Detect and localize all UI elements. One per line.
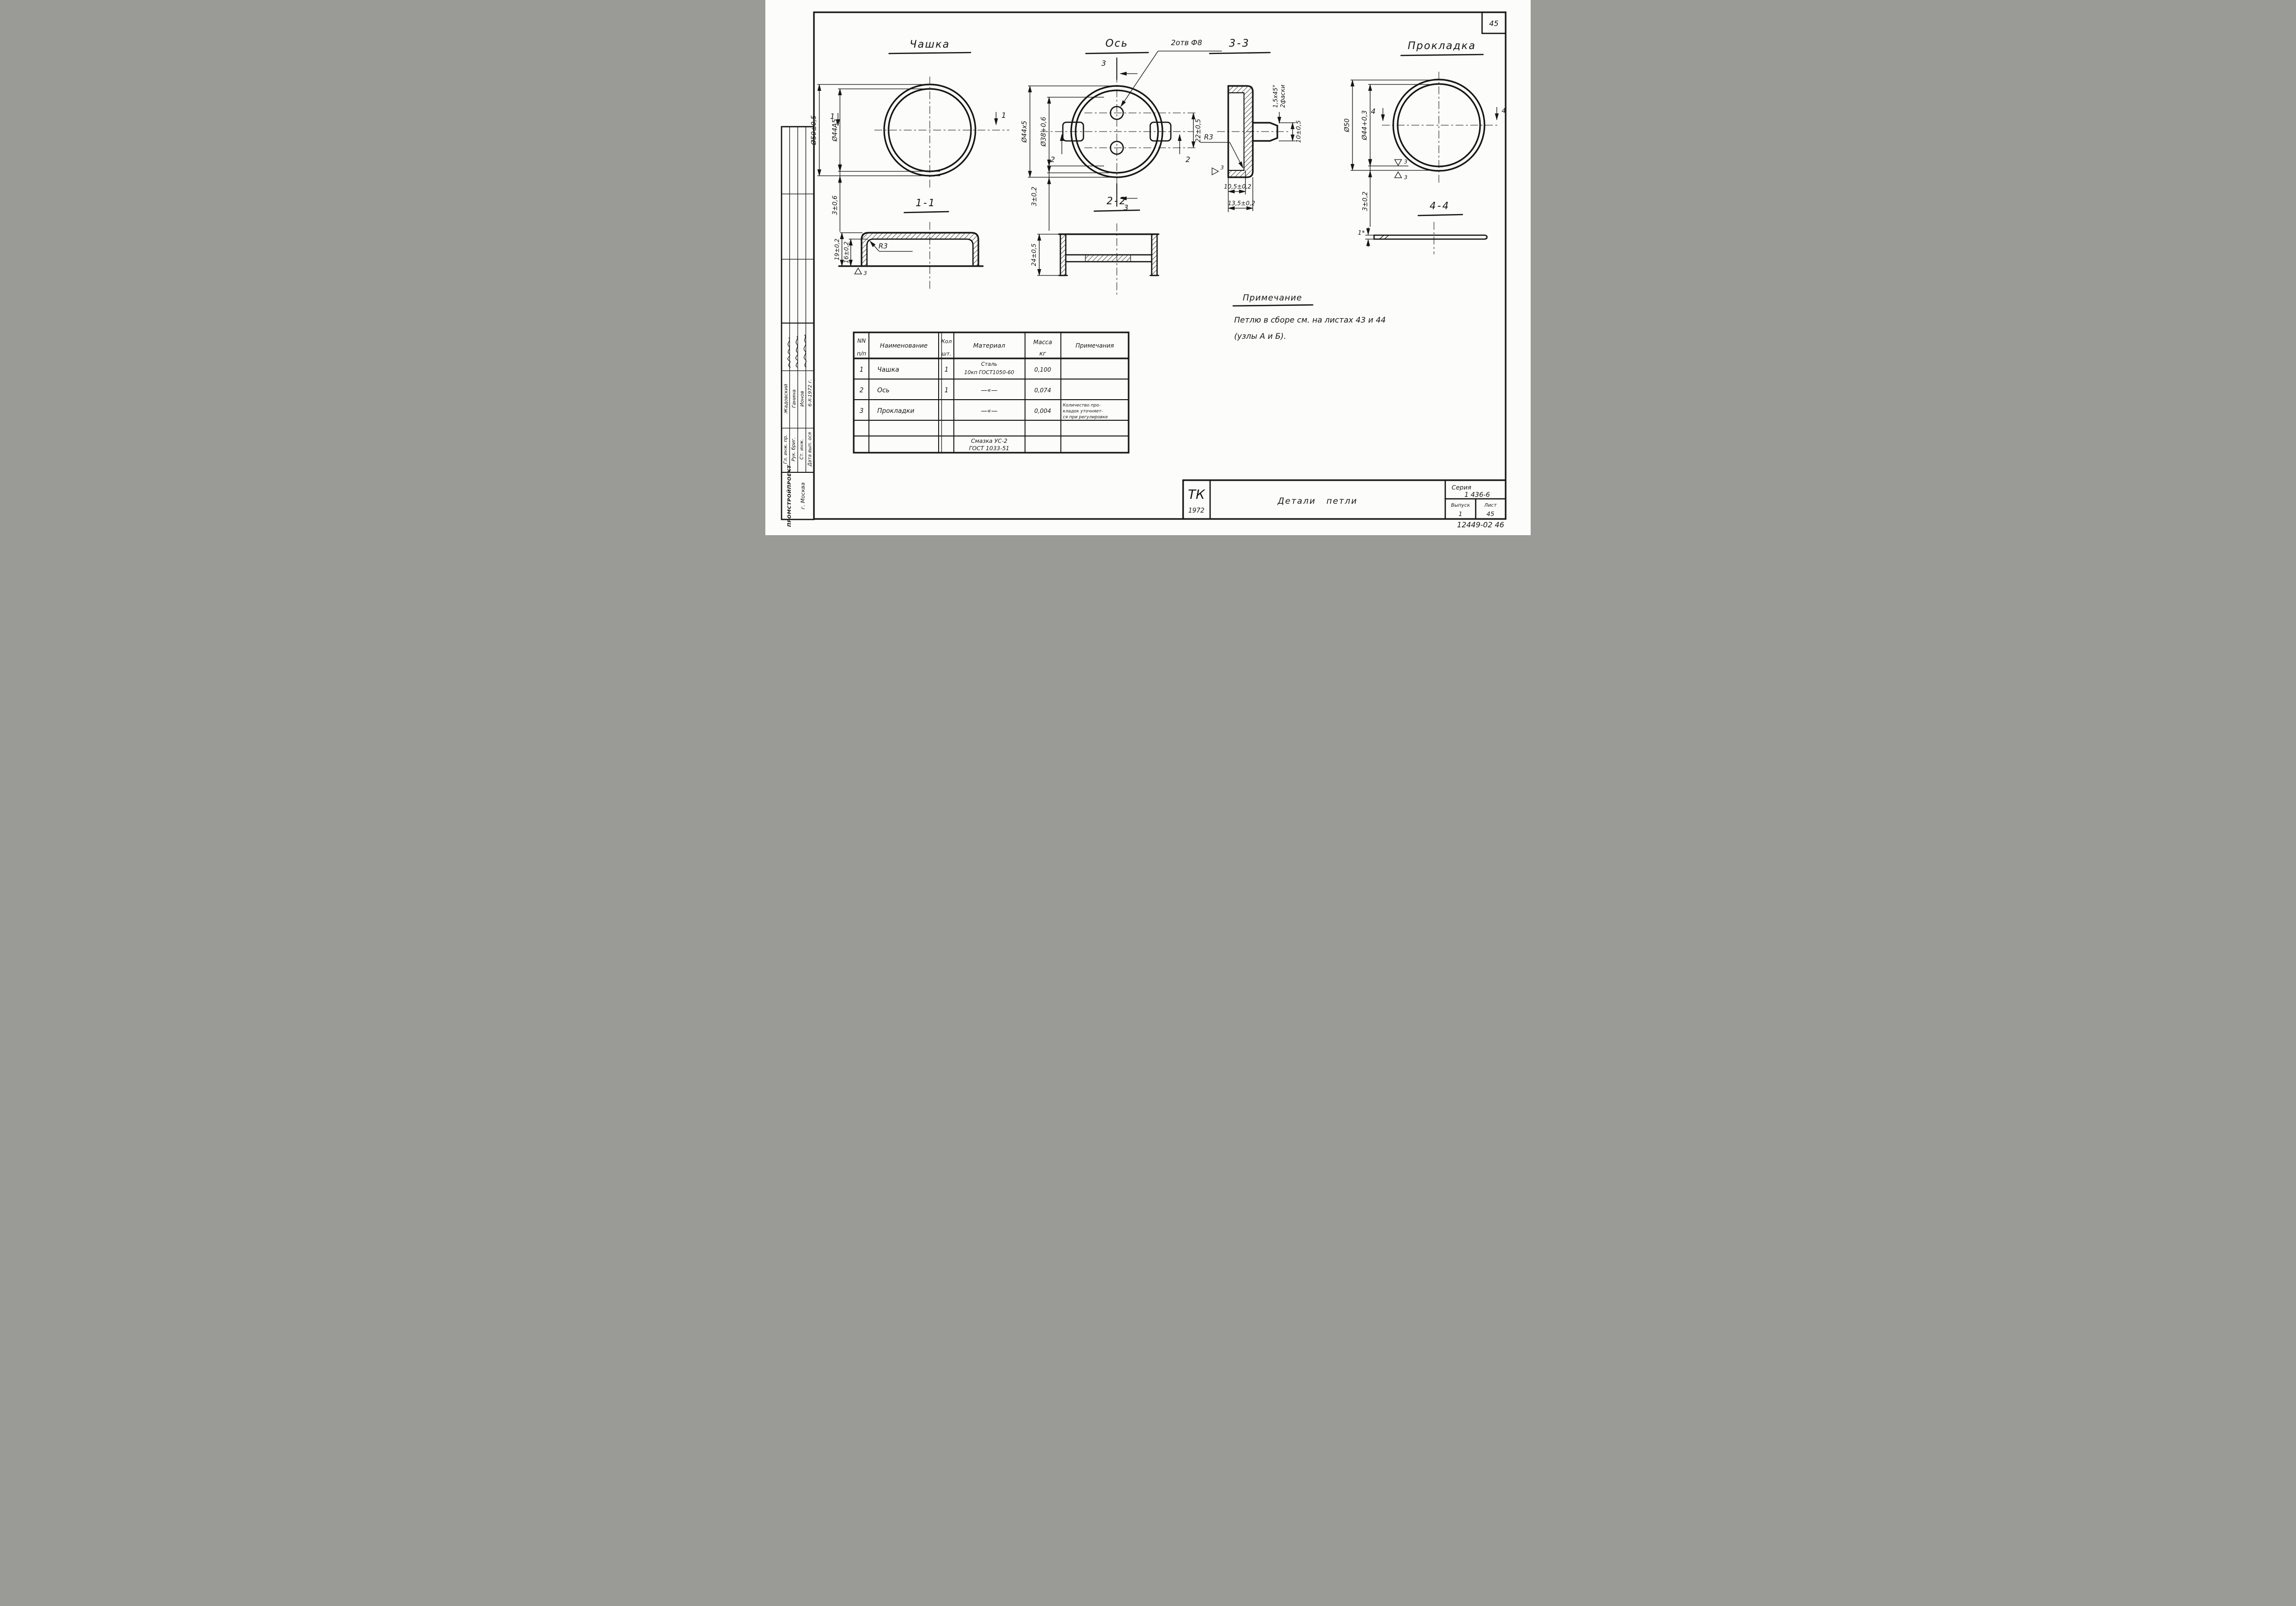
org-year: 1972 [1188, 507, 1204, 515]
sidebar-role-sr-eng: Ст. инж. [799, 439, 805, 460]
cell-num: 1 [860, 366, 864, 374]
sidebar-stamp: Гл. инж. пр. Жадовский Рук. бриг. Ганина… [782, 127, 814, 527]
cut-mark-4-right: 4 [1502, 108, 1506, 115]
sidebar-role-date: Дата вып. ося [808, 432, 813, 467]
th-nn2: п/п [857, 350, 866, 357]
surface-finish-value: 3 [1404, 174, 1407, 181]
dim-chashka-outer: Ø50±0,5 [810, 115, 818, 146]
surface-finish-icon [1212, 168, 1218, 175]
cell-qty: 1 [945, 387, 948, 394]
series-label: Серия [1452, 484, 1471, 491]
table-row: 1 Чашка 1 Сталь 10кп ГОСТ1050-60 0,100 [860, 361, 1052, 376]
dim-os-holes: 22±0,5 [1195, 119, 1202, 142]
cell-mat: —«— [981, 387, 998, 394]
th-qty2: шт. [942, 351, 951, 357]
dim-recess-depth: 10,5±0,2 [1224, 183, 1251, 190]
cell-mat: —«— [981, 408, 998, 415]
surface-finish-value: 3 [864, 270, 867, 276]
callout-holes: 2отв Ф8 [1171, 38, 1202, 47]
drawing-sheet: 45 12449-02 46 Гл. инж. пр. Жадовский Ру… [765, 0, 1531, 535]
org-code: ТК [1188, 488, 1206, 502]
surface-finish-icon [855, 268, 862, 274]
doc-number: 12449-02 46 [1457, 520, 1504, 529]
sidebar-name-sr-eng: Ионов [800, 391, 805, 407]
th-qty: Кол [941, 338, 952, 345]
dim-radius-r3: R3 [879, 243, 888, 250]
cell-mass: 0,074 [1034, 387, 1051, 394]
note-line-2: (узлы А и Б). [1234, 331, 1286, 341]
cell-mass: 0,004 [1034, 408, 1051, 414]
cut-mark-3-top: 3 [1101, 59, 1106, 68]
surface-finish-value: 3 [1220, 164, 1224, 171]
corner-number: 45 [1489, 19, 1498, 28]
issue-value: 1 [1459, 510, 1462, 517]
cell-name: Чашка [877, 366, 899, 374]
dim-chashka-inner: Ø44А5 [831, 119, 839, 142]
view-title-chashka: Чашка [910, 38, 950, 50]
th-mass2: кг [1039, 350, 1046, 357]
sidebar-role-brigade: Рук. бриг. [791, 437, 797, 461]
note-block: Примечание Петлю в сборе см. на листах 4… [1233, 293, 1386, 341]
series-value: 1 436-6 [1464, 491, 1490, 499]
table-row: 3 Прокладки —«— 0,004 Количество про- кл… [860, 403, 1108, 420]
dim-axis-height: 24±0,5 [1030, 244, 1037, 266]
cut-mark-1-right: 1 [1001, 111, 1006, 120]
th-name: Наименование [880, 342, 927, 349]
dim-radius-r3: R3 [1204, 134, 1214, 141]
sheet-value: 45 [1486, 510, 1494, 517]
dim-chashka-flange: 3±0,6 [832, 195, 839, 215]
sidebar-city: г. Москва [800, 482, 806, 509]
sidebar-name-brigade: Ганина [792, 389, 797, 408]
dim-os-outer: Ø44х5 [1021, 121, 1028, 143]
view-title-1-1: 1-1 [916, 197, 936, 209]
dim-chamfer: 1,5х45° [1272, 84, 1279, 108]
view-chashka: Чашка 1 1 Ø50±0,5 Ø44А5 3±0,6 [810, 38, 1009, 232]
dim-pin-height: 10±0,5 [1295, 120, 1302, 143]
cell-num: 3 [860, 408, 864, 415]
cell-note: кладок уточняет- [1063, 409, 1103, 414]
note-line-1: Петлю в сборе см. на листах 43 и 44 [1234, 315, 1386, 325]
dim-gasket-thickness: 1* [1358, 229, 1365, 236]
surface-finish-icon [1395, 160, 1402, 165]
dim-disc-width: 13,5±0,2 [1228, 200, 1255, 207]
sidebar-role-ch-eng: Гл. инж. пр. [783, 435, 788, 464]
view-section-4-4: 4-4 1* [1358, 200, 1487, 254]
issue-label: Выпуск [1451, 503, 1470, 508]
dim-prokladka-outer: Ø50 [1343, 118, 1351, 133]
drawing-title: Детали петли [1277, 496, 1358, 506]
cut-mark-2-left: 2 [1050, 155, 1055, 164]
gasket-strip-section [1374, 235, 1487, 239]
sidebar-date-value: 6-X-1972 г. [808, 379, 813, 407]
view-title-4-4: 4-4 [1430, 200, 1450, 212]
cell-name: Прокладки [877, 408, 914, 415]
sidebar-org: ПРОМСТРОЙПРОЕКТ [786, 464, 792, 527]
table-row: Смазка УС-2 ГОСТ 1033-51 [969, 437, 1009, 452]
sheet-label: Лист [1484, 503, 1497, 508]
dim-prokladka-inner: Ø44+0,3 [1361, 110, 1369, 141]
th-nn: NN [857, 337, 866, 344]
title-block: ТК 1972 Детали петли Серия 1 436-6 Выпус… [1183, 480, 1506, 519]
cell-qty: 1 [945, 366, 948, 374]
dim-cup-inner-h: 16±0,2 [843, 242, 850, 263]
parts-table: NN п/п Наименование Кол шт. Материал Мас… [854, 332, 1129, 453]
note-title: Примечание [1243, 293, 1302, 303]
cell-note: ся при регулировке [1063, 415, 1108, 420]
dim-os-flange: 3±0,2 [1031, 187, 1038, 206]
cut-mark-2-right: 2 [1186, 155, 1190, 164]
th-mass: Масса [1033, 339, 1052, 346]
view-section-1-1: 1-1 R3 19±0,2 16±0,2 3 [834, 197, 983, 289]
view-prokladka: Прокладка 4 4 Ø50 Ø44+0,3 3±0,2 3 3 [1343, 40, 1506, 227]
dim-cup-outer-h: 19±0,2 [834, 239, 840, 260]
dim-chamfer-count: 2фаски [1279, 84, 1286, 108]
dim-prokladka-flange: 3±0,2 [1362, 191, 1369, 211]
surface-finish-icon [1395, 172, 1402, 178]
cell-name: Ось [877, 387, 890, 394]
cell-mat: Сталь [981, 361, 998, 367]
cell-num: 2 [860, 387, 864, 394]
surface-finish-value: 3 [1404, 159, 1407, 165]
sheet-frame: 45 12449-02 46 [814, 12, 1506, 529]
cell-mat: Смазка УС-2 [971, 437, 1007, 444]
dim-os-inner: Ø38+0,6 [1040, 117, 1048, 147]
th-material: Материал [973, 342, 1005, 349]
th-notes: Примечания [1076, 342, 1114, 349]
sidebar-name-ch-eng: Жадовский [783, 383, 789, 414]
view-title-prokladka: Прокладка [1407, 40, 1476, 52]
drawing-canvas: 45 12449-02 46 Гл. инж. пр. Жадовский Ру… [765, 0, 1531, 535]
cell-mass: 0,100 [1034, 366, 1052, 373]
cut-mark-4-left: 4 [1371, 107, 1376, 116]
cell-mat2: 10кп ГОСТ1050-60 [964, 370, 1014, 376]
cell-mat2: ГОСТ 1033-51 [969, 445, 1009, 452]
signature [788, 338, 790, 367]
view-title-2-2: 2-2 [1107, 195, 1127, 207]
view-section-3-3: 3-3 1,5х45° 2фаски 10±0,5 R3 3 10,5±0,2 … [1200, 37, 1302, 212]
view-title-os: Ось [1106, 37, 1128, 49]
view-title-3-3: 3-3 [1229, 37, 1250, 49]
cell-note: Количество про- [1063, 403, 1101, 408]
table-row: 2 Ось 1 —«— 0,074 [860, 387, 1051, 394]
